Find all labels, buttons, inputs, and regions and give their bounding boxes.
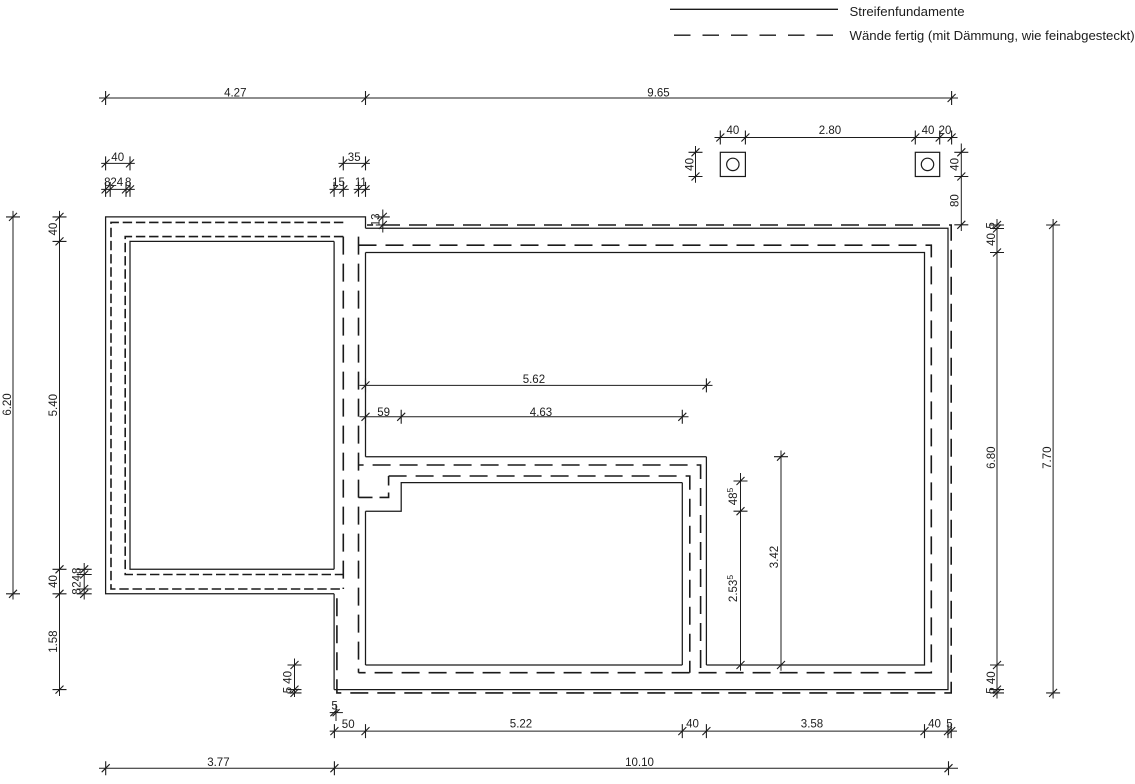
svg-text:13: 13 — [371, 213, 383, 226]
svg-text:3.58: 3.58 — [801, 719, 823, 731]
svg-text:40: 40 — [283, 671, 295, 684]
svg-text:24: 24 — [110, 177, 123, 189]
svg-text:59: 59 — [377, 407, 390, 419]
svg-text:5: 5 — [985, 222, 997, 228]
svg-text:5: 5 — [283, 687, 295, 693]
svg-text:40: 40 — [727, 125, 740, 137]
svg-text:8: 8 — [72, 588, 84, 594]
svg-text:8: 8 — [72, 568, 84, 574]
svg-text:5.62: 5.62 — [523, 374, 545, 386]
svg-text:5.40: 5.40 — [48, 394, 60, 416]
svg-text:5: 5 — [986, 687, 998, 693]
svg-text:Wände fertig (mit Dämmung, wie: Wände fertig (mit Dämmung, wie feinabges… — [850, 28, 1135, 43]
svg-text:15: 15 — [332, 177, 345, 189]
svg-text:40: 40 — [48, 223, 60, 236]
svg-text:2.80: 2.80 — [819, 125, 841, 137]
svg-text:40: 40 — [986, 671, 998, 684]
svg-text:40: 40 — [922, 125, 935, 137]
svg-text:40: 40 — [111, 152, 124, 164]
svg-text:5: 5 — [946, 719, 952, 731]
svg-text:3.77: 3.77 — [207, 757, 229, 769]
svg-text:6.20: 6.20 — [2, 393, 14, 415]
svg-text:20: 20 — [939, 125, 952, 137]
svg-text:4.27: 4.27 — [224, 88, 246, 100]
svg-text:9.65: 9.65 — [647, 88, 669, 100]
svg-text:5: 5 — [331, 701, 337, 713]
svg-text:24: 24 — [72, 574, 84, 587]
svg-text:80: 80 — [950, 194, 962, 207]
svg-text:40: 40 — [685, 158, 697, 171]
svg-text:3.42: 3.42 — [769, 546, 781, 568]
svg-text:5.22: 5.22 — [510, 719, 532, 731]
svg-text:7.70: 7.70 — [1042, 447, 1054, 469]
svg-text:40: 40 — [686, 719, 699, 731]
svg-text:4.63: 4.63 — [530, 407, 552, 419]
svg-text:40: 40 — [950, 158, 962, 171]
svg-text:2.535: 2.535 — [725, 575, 740, 602]
svg-text:10.10: 10.10 — [625, 757, 654, 769]
svg-text:6.80: 6.80 — [986, 447, 998, 469]
svg-text:Streifenfundamente: Streifenfundamente — [850, 4, 965, 19]
svg-text:40: 40 — [48, 575, 60, 588]
svg-text:485: 485 — [725, 487, 740, 505]
svg-text:8: 8 — [125, 177, 131, 189]
svg-text:1.58: 1.58 — [48, 630, 60, 652]
svg-text:40: 40 — [928, 719, 941, 731]
svg-text:50: 50 — [342, 719, 355, 731]
svg-text:11: 11 — [355, 177, 367, 189]
svg-text:40: 40 — [986, 233, 998, 246]
svg-text:35: 35 — [348, 152, 361, 164]
